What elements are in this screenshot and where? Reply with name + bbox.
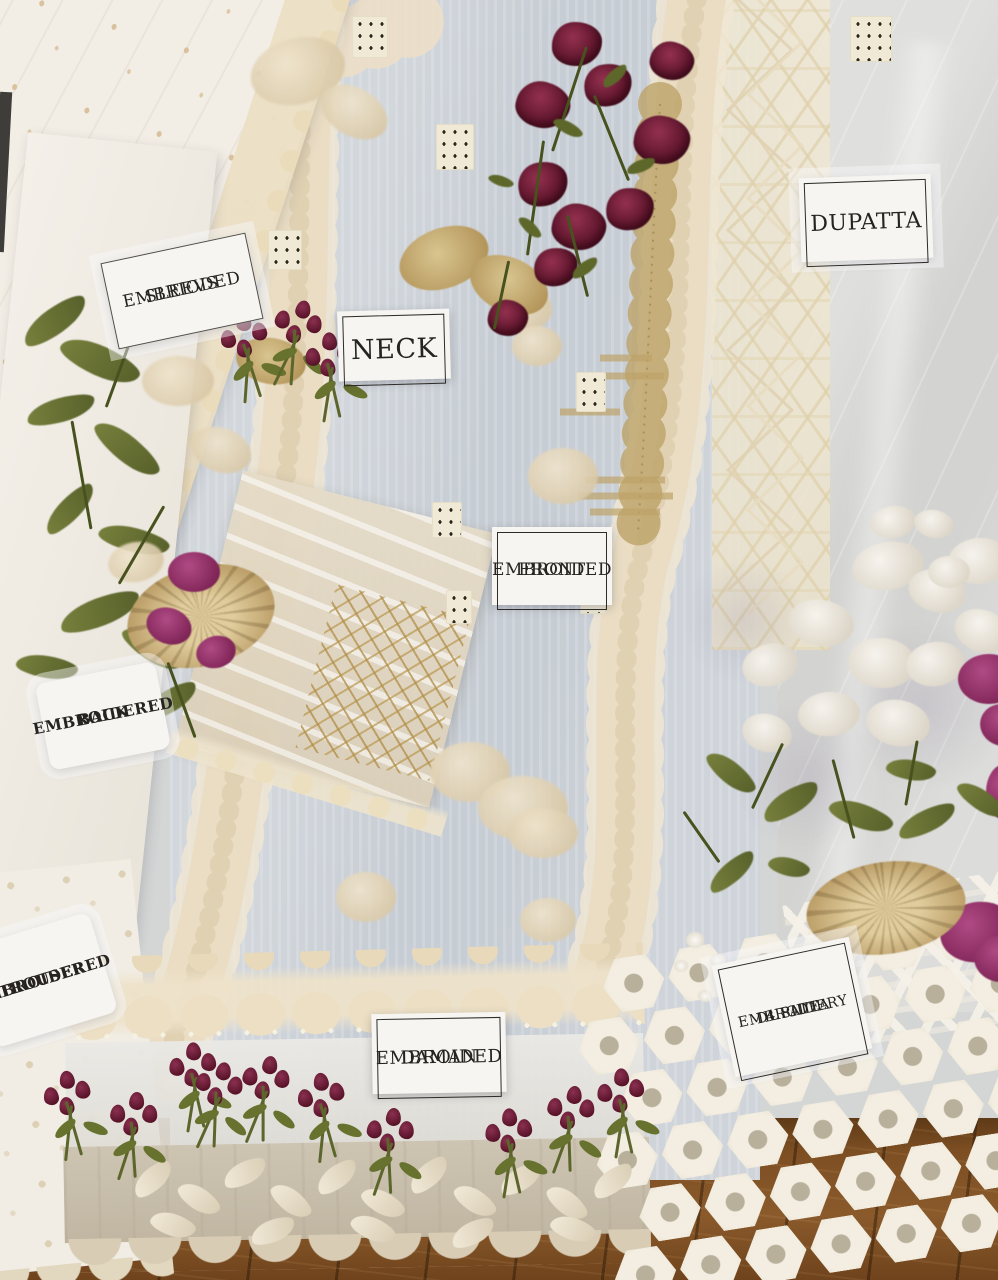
dupatta-organza-border xyxy=(712,0,830,650)
hexagon-lace-motif xyxy=(635,1181,705,1244)
tag-text: DAMAN xyxy=(400,1046,478,1070)
tag-text: NECK xyxy=(351,332,438,368)
tag-text: FRONT xyxy=(518,560,585,581)
tag-neck: NECK xyxy=(337,309,451,382)
hexagon-lace-motif xyxy=(723,1108,793,1171)
hexagon-lace-motif xyxy=(741,1223,811,1280)
tag-embroided-daman: EMBROIDEDDAMAN xyxy=(371,1012,506,1094)
hexagon-lace-motif xyxy=(806,1212,876,1275)
hexagon-lace-motif xyxy=(658,1118,728,1181)
tag-text: SLEEVS xyxy=(143,273,220,309)
tag-dupatta: DUPATTA xyxy=(799,174,934,263)
tag-text: DUPATTA xyxy=(810,207,922,238)
hexagon-lace-motif xyxy=(700,1170,770,1233)
hexagon-lace-motif xyxy=(788,1098,858,1161)
hexagon-lace-motif xyxy=(617,1066,687,1129)
hexagon-lace-motif xyxy=(599,952,669,1015)
fabric-flatlay-photo: EMBRIODEDSLEEVS NECK DUPATTA EMBROIDEDFR… xyxy=(0,0,998,1280)
tag-embroided-front: EMBROIDEDFRONT xyxy=(492,527,612,605)
tag-text: TROUSER xyxy=(0,958,88,1003)
hexagon-lace-motif xyxy=(574,1014,644,1077)
hexagon-lace-motif xyxy=(676,1233,746,1280)
hexagon-lace-motif xyxy=(853,1088,923,1151)
daman-leaf-lace-border xyxy=(63,1137,651,1243)
hexagon-lace-motif xyxy=(918,1077,988,1140)
hexagon-lace-motif xyxy=(593,1129,663,1192)
tag-text: BACK xyxy=(76,702,131,731)
hexagon-lace-motif xyxy=(611,1243,681,1280)
hexagon-lace-motif xyxy=(961,1129,998,1192)
hexagon-lace-motif xyxy=(871,1202,941,1265)
hexagon-lace-motif xyxy=(896,1139,966,1202)
hexagon-lace-motif xyxy=(640,1004,710,1067)
hexagon-lace-motif xyxy=(831,1150,901,1213)
tag-text: DUPATTA xyxy=(755,995,832,1028)
daman-fabric-band xyxy=(65,1033,645,1153)
hexagon-lace-motif xyxy=(766,1160,836,1223)
hexagon-lace-motif xyxy=(984,1067,998,1130)
hexagon-lace-motif xyxy=(937,1192,998,1255)
